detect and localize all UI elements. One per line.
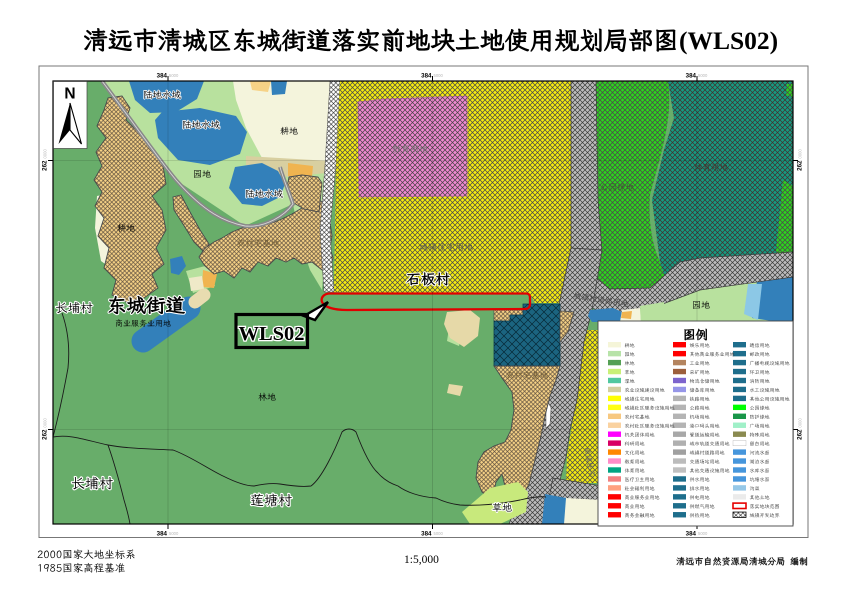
svg-text:N: N (64, 86, 75, 103)
svg-text:384: 384 (157, 73, 168, 80)
svg-text:0000: 0000 (798, 149, 803, 159)
svg-text:384: 384 (421, 531, 432, 538)
svg-text:0000: 0000 (43, 418, 48, 428)
svg-text:5000: 5000 (434, 73, 444, 78)
svg-text:0000: 0000 (43, 149, 48, 159)
svg-text:0000: 0000 (798, 418, 803, 428)
svg-text:384: 384 (157, 531, 168, 538)
svg-text:384: 384 (686, 73, 697, 80)
svg-text:384: 384 (686, 531, 697, 538)
svg-text:WLS02: WLS02 (238, 323, 304, 345)
svg-text:262: 262 (797, 429, 804, 440)
svg-text:(WLS02): (WLS02) (679, 26, 778, 55)
svg-text:262: 262 (797, 160, 804, 171)
svg-text:5000: 5000 (169, 73, 179, 78)
svg-text:5000: 5000 (698, 73, 708, 78)
svg-text:5000: 5000 (698, 531, 708, 536)
svg-text:384: 384 (421, 73, 432, 80)
svg-text:1:5,000: 1:5,000 (404, 554, 439, 566)
svg-text:5000: 5000 (434, 531, 444, 536)
svg-text:262: 262 (42, 429, 49, 440)
svg-text:5000: 5000 (169, 531, 179, 536)
svg-text:262: 262 (42, 160, 49, 171)
